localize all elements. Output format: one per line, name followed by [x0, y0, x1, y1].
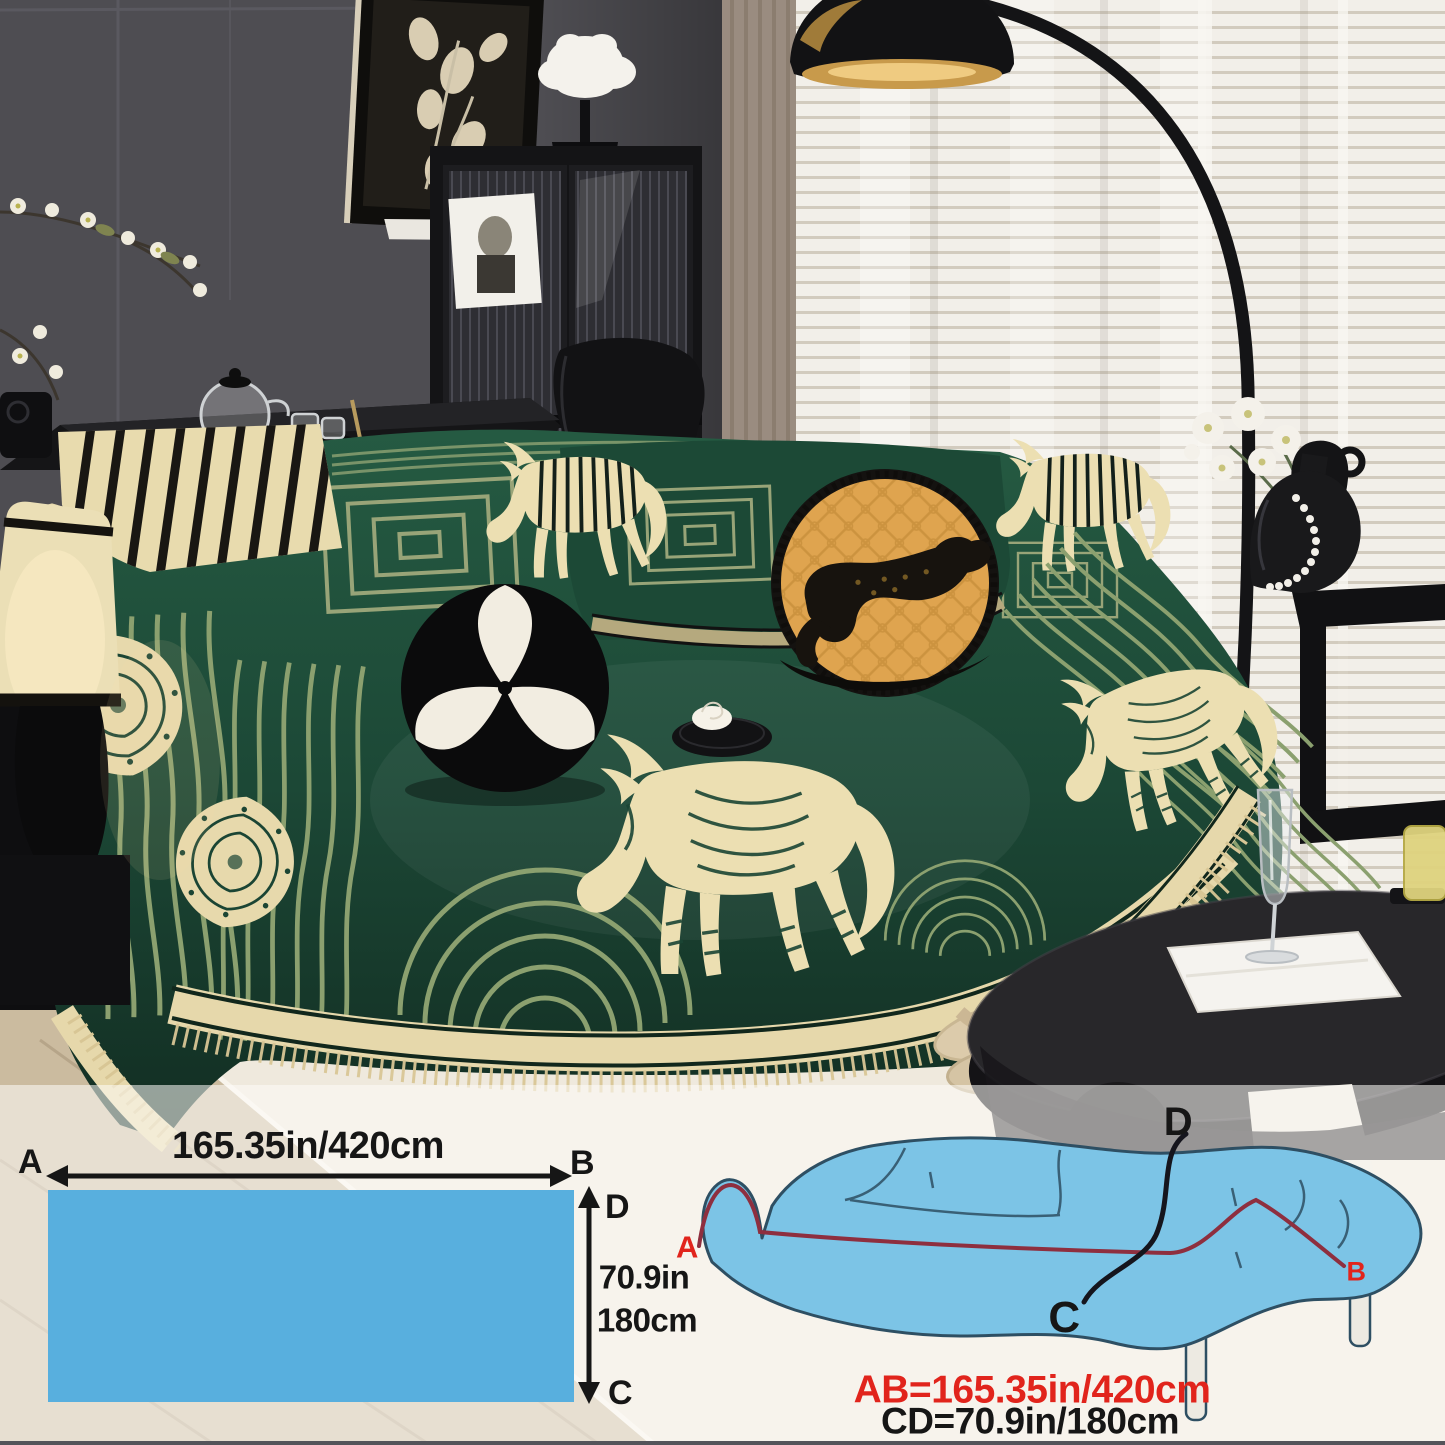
glass-vase — [0, 392, 52, 458]
flat-corner-a-label: A — [18, 1145, 42, 1179]
flat-corner-b-label: B — [570, 1146, 594, 1180]
sofa-corner-d-label: D — [1164, 1102, 1192, 1142]
sofa-corner-b-label: B — [1347, 1259, 1366, 1286]
flat-corner-c-label: C — [608, 1376, 632, 1410]
flat-width-label: 165.35in/420cm — [172, 1127, 444, 1165]
flat-height-cm-label: 180cm — [597, 1304, 697, 1337]
bottom-edge-bar — [0, 1441, 1445, 1445]
flat-height-inches-label: 70.9in — [599, 1261, 690, 1294]
flat-diagram — [46, 1165, 600, 1404]
sofa-corner-a-label: A — [676, 1232, 698, 1263]
scene-canvas — [0, 0, 1445, 1445]
orange-leopard-pillow — [771, 469, 999, 697]
sofa-corner-c-label: C — [1048, 1296, 1079, 1340]
cd-measure-label: CD=70.9in/180cm — [881, 1403, 1179, 1440]
product-image: A 165.35in/420cm B D C 70.9in 180cm A B … — [0, 0, 1445, 1445]
flat-corner-d-label: D — [605, 1190, 629, 1224]
blanket-swatch — [48, 1190, 574, 1402]
